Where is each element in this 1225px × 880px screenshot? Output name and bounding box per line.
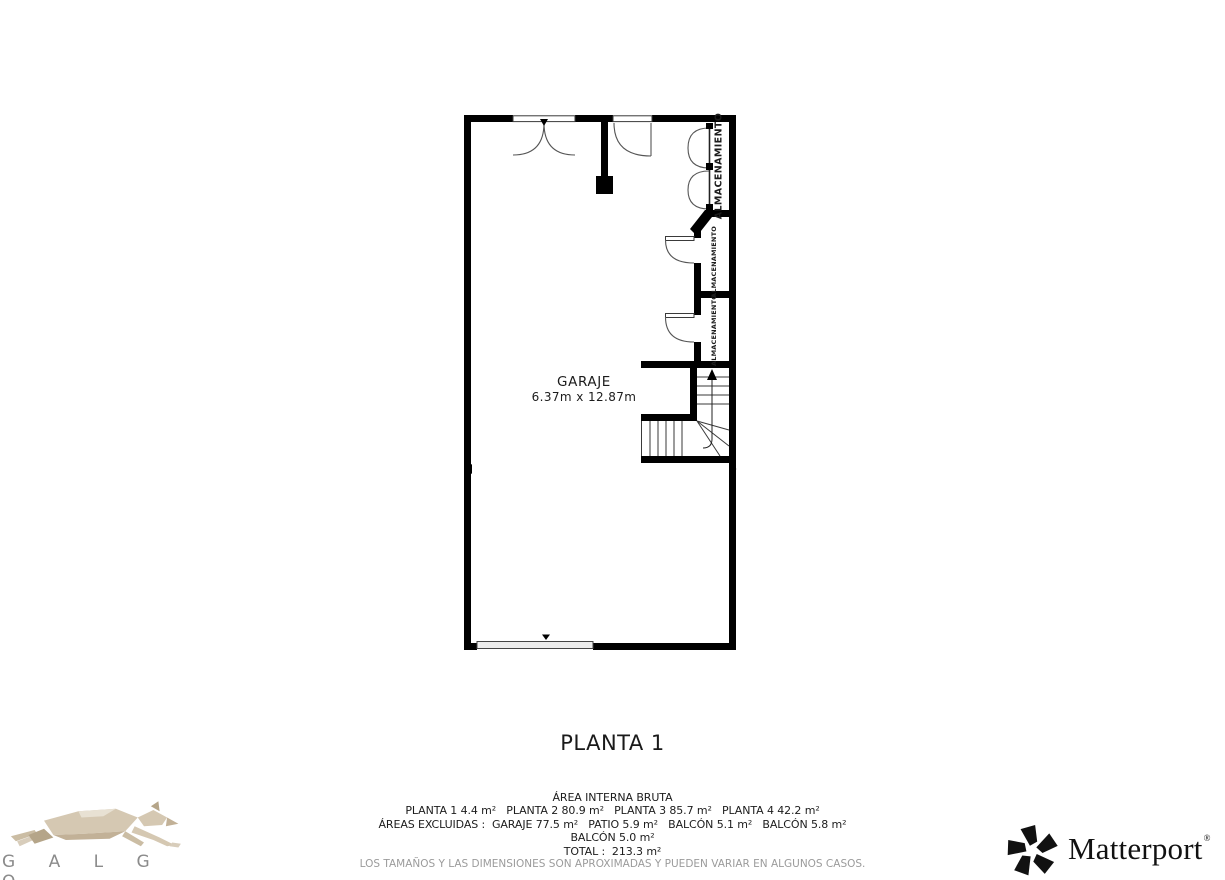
door-arcs bbox=[513, 123, 709, 342]
registered-trademark-symbol: ® bbox=[1204, 833, 1211, 843]
floor-title: PLANTA 1 bbox=[0, 731, 1225, 755]
room-label-garaje: GARAJE bbox=[557, 374, 611, 390]
galgo-logo: G A L G O bbox=[0, 800, 204, 880]
matterport-logo: Matterport® bbox=[1002, 822, 1225, 880]
storage-label-1: ALMACENAMIENTO bbox=[714, 113, 725, 220]
storage-label-3: ALMACENAMIENTO bbox=[710, 294, 718, 366]
storage-label-2: ALMACENAMIENTO bbox=[710, 226, 718, 298]
matterport-wordmark: Matterport® bbox=[1068, 831, 1211, 867]
garage-door bbox=[477, 635, 593, 649]
room-dimensions: 6.37m x 12.87m bbox=[532, 390, 637, 404]
galgo-wordmark: G A L G O bbox=[2, 852, 204, 880]
staircase bbox=[642, 369, 730, 456]
floor-plan-page: GARAJE 6.37m x 12.87m ALMACENAMIENTO ALM… bbox=[0, 0, 1225, 880]
galgo-greyhound-icon bbox=[0, 800, 204, 850]
closet-front bbox=[706, 123, 713, 210]
matterport-pinwheel-icon bbox=[1005, 825, 1059, 877]
